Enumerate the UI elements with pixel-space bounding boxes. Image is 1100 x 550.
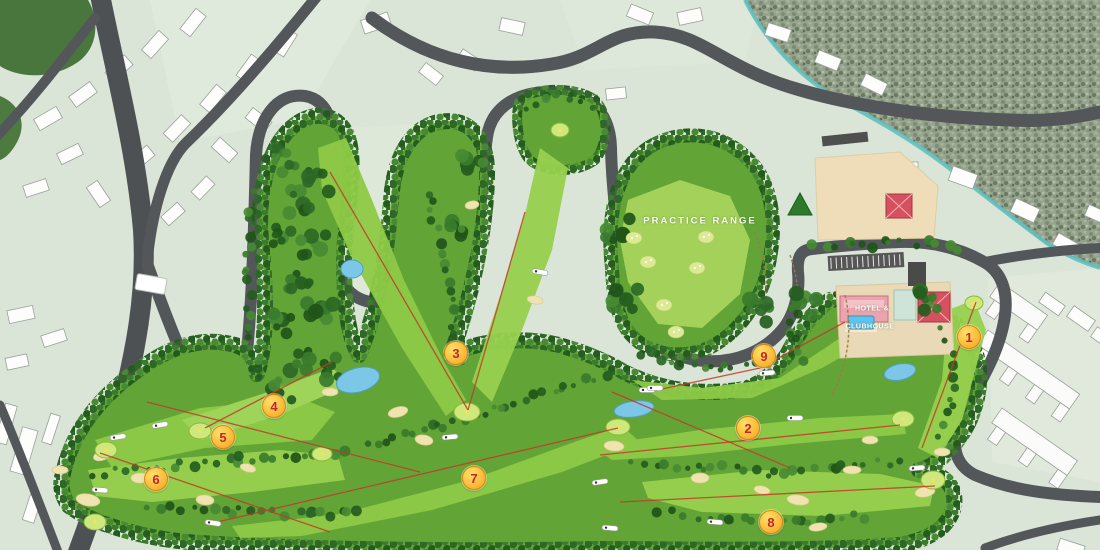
service-building (908, 262, 926, 286)
tee-marker (787, 416, 803, 421)
sand-bunker (862, 436, 878, 444)
tee-marker (647, 386, 663, 391)
building-footprint (605, 87, 626, 100)
hole-marker-2: 2 (736, 416, 760, 440)
practice-target (640, 256, 656, 268)
practice-target (689, 262, 705, 274)
pin-flag-dot (465, 410, 468, 413)
tee-marker (707, 519, 723, 525)
tee-marker (602, 525, 618, 531)
pin-flag-dot (901, 417, 904, 420)
pin-flag-dot (93, 520, 96, 523)
pin-flag-dot (931, 478, 934, 481)
hole-marker-7: 7 (462, 466, 486, 490)
hole-marker-1: 1 (957, 325, 981, 349)
pin-flag-dot (198, 429, 201, 432)
pin-flag-dot (104, 448, 107, 451)
tee-marker (92, 487, 108, 493)
practice-target (698, 231, 714, 243)
practice-range-label: PRACTICE RANGE (643, 216, 757, 227)
tee-marker (759, 370, 775, 376)
practice-target (626, 232, 642, 244)
map-stage: PRACTICE RANGE HOTEL & CLUBHOUSE 1234567… (0, 0, 1100, 550)
hole-marker-5: 5 (211, 425, 235, 449)
hole-marker-4: 4 (262, 394, 286, 418)
hole-marker-8: 8 (759, 510, 783, 534)
spa-building (894, 290, 916, 320)
hotel-label-line1: HOTEL & (855, 306, 889, 313)
practice-target (668, 326, 684, 338)
pin-flag-dot (320, 452, 323, 455)
pavilion-red-roof-upper (886, 194, 912, 218)
hole-marker-6: 6 (144, 467, 168, 491)
tee-marker (442, 434, 458, 440)
hotel-label-line2: CLUBHOUSE (846, 324, 895, 331)
pin-flag-dot (558, 128, 561, 131)
sand-bunker (322, 388, 338, 396)
pond (341, 260, 363, 278)
tee-marker (909, 465, 925, 471)
sand-bunker (934, 448, 950, 456)
sand-bunker (691, 473, 709, 483)
masterplan-canvas (0, 0, 1100, 550)
sand-bunker (52, 466, 68, 474)
practice-target (656, 299, 672, 311)
hole-marker-9: 9 (752, 344, 776, 368)
sand-bunker (843, 466, 861, 474)
hole-marker-3: 3 (444, 341, 468, 365)
